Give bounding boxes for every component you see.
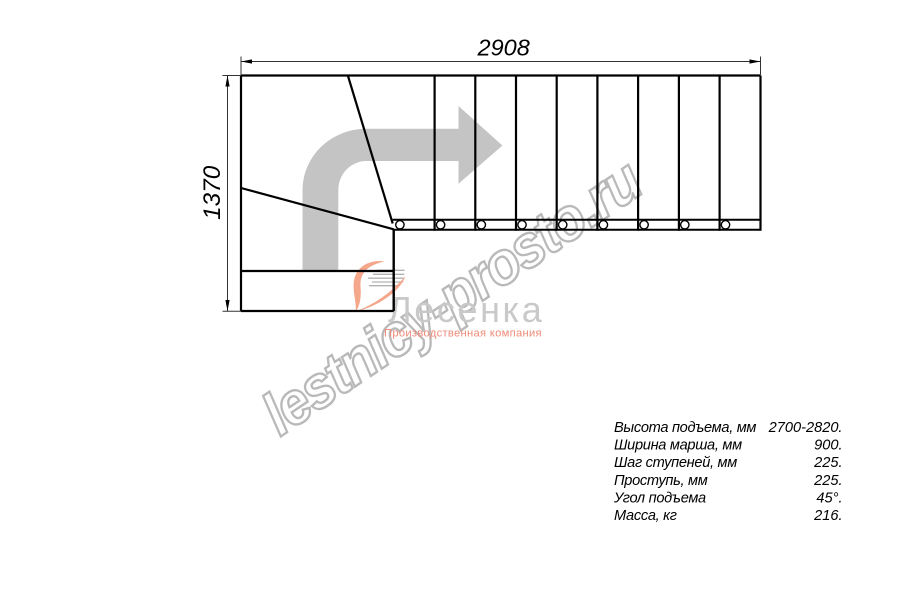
svg-text:900.: 900. — [814, 438, 842, 454]
svg-text:45°.: 45°. — [816, 490, 842, 506]
svg-text:Ширина марша, мм: Ширина марша, мм — [614, 438, 742, 454]
svg-text:2700-2820.: 2700-2820. — [768, 420, 843, 436]
svg-text:Шаг ступеней, мм: Шаг ступеней, мм — [614, 455, 737, 471]
svg-text:225.: 225. — [813, 455, 842, 471]
svg-text:Лесенка: Лесенка — [388, 289, 544, 330]
svg-text:1370: 1370 — [199, 165, 226, 220]
svg-text:Угол подъема: Угол подъема — [613, 490, 706, 506]
svg-text:Проступь, мм: Проступь, мм — [614, 473, 708, 489]
svg-text:Производственная компания: Производственная компания — [384, 328, 542, 340]
svg-text:216.: 216. — [813, 508, 842, 524]
svg-text:Масса, кг: Масса, кг — [614, 508, 677, 524]
svg-text:225.: 225. — [813, 473, 842, 489]
svg-text:2908: 2908 — [477, 35, 530, 61]
svg-text:Высота подъема, мм: Высота подъема, мм — [614, 420, 756, 436]
